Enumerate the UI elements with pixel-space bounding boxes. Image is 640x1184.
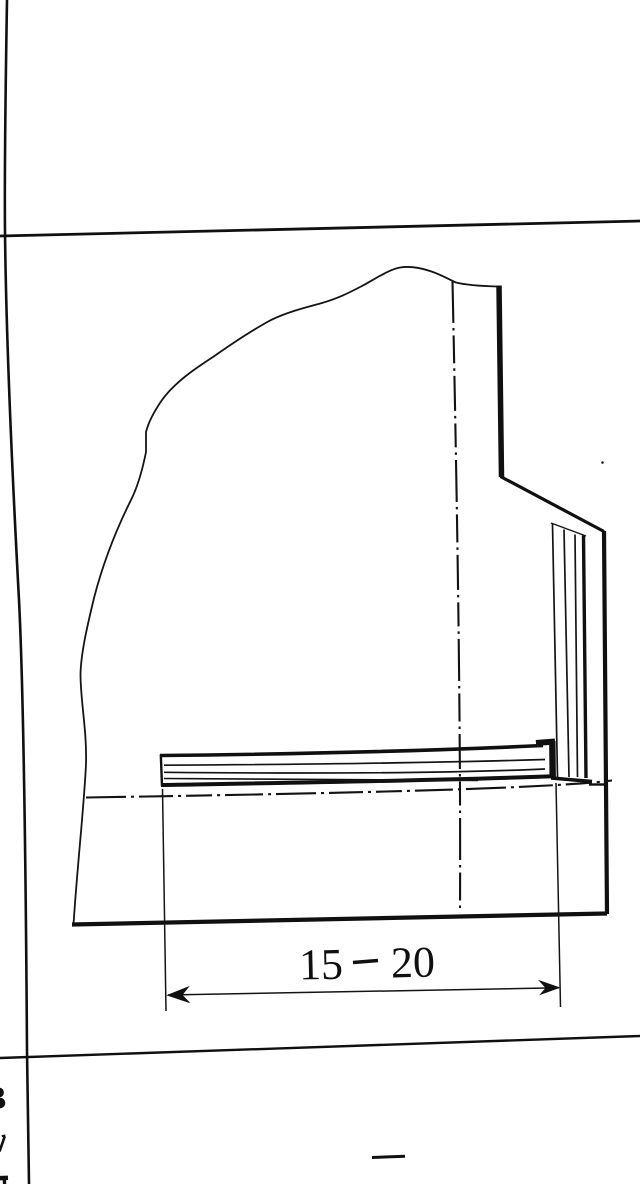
svg-text:20: 20 — [390, 937, 435, 987]
svg-text:15: 15 — [298, 940, 343, 990]
